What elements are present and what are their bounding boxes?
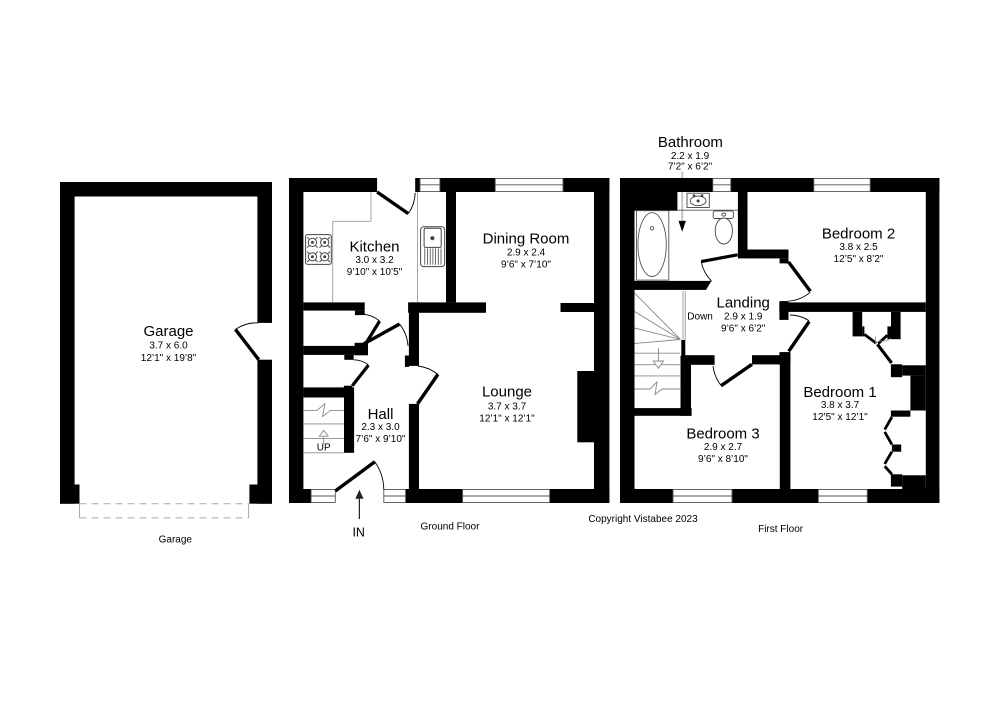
svg-text:3.0 x 3.2: 3.0 x 3.2 <box>355 255 394 266</box>
svg-text:Garage: Garage <box>159 535 193 546</box>
svg-text:Bathroom: Bathroom <box>658 134 723 151</box>
svg-text:First Floor: First Floor <box>758 524 804 535</box>
svg-text:Dining Room: Dining Room <box>483 231 570 248</box>
svg-text:12’5" x 12’1": 12’5" x 12’1" <box>812 412 868 423</box>
svg-text:9’6" x 7’10": 9’6" x 7’10" <box>501 259 551 270</box>
svg-text:Bedroom 1: Bedroom 1 <box>803 384 876 401</box>
svg-text:9’6" x 6’2": 9’6" x 6’2" <box>721 324 766 335</box>
svg-text:7’6" x 9’10": 7’6" x 9’10" <box>356 434 406 445</box>
svg-text:3.7 x 6.0: 3.7 x 6.0 <box>149 341 188 352</box>
svg-text:2.9 x 1.9: 2.9 x 1.9 <box>724 312 763 323</box>
svg-text:Lounge: Lounge <box>482 384 532 401</box>
svg-text:Bedroom 3: Bedroom 3 <box>686 426 759 443</box>
svg-text:12’1" x 12’1": 12’1" x 12’1" <box>479 413 535 424</box>
svg-text:12’1" x 19’8": 12’1" x 19’8" <box>141 353 197 364</box>
svg-text:2.2 x 1.9: 2.2 x 1.9 <box>671 151 710 162</box>
svg-text:2.9 x 2.7: 2.9 x 2.7 <box>704 442 743 453</box>
svg-text:Copyright Vistabee 2023: Copyright Vistabee 2023 <box>588 514 698 525</box>
svg-text:Landing: Landing <box>717 295 770 312</box>
svg-text:Bedroom 2: Bedroom 2 <box>822 225 895 242</box>
svg-text:7’2" x 6’2": 7’2" x 6’2" <box>668 162 713 173</box>
svg-text:Hall: Hall <box>368 406 394 423</box>
svg-text:2.9 x 2.4: 2.9 x 2.4 <box>507 247 546 258</box>
svg-text:IN: IN <box>352 526 365 540</box>
svg-text:Ground Floor: Ground Floor <box>421 522 481 533</box>
svg-text:UP: UP <box>317 442 331 453</box>
svg-text:Garage: Garage <box>143 323 193 340</box>
svg-text:3.8 x 3.7: 3.8 x 3.7 <box>821 400 860 411</box>
svg-text:Kitchen: Kitchen <box>349 239 399 256</box>
svg-text:12’5" x 8’2": 12’5" x 8’2" <box>834 254 884 265</box>
svg-text:3.8 x 2.5: 3.8 x 2.5 <box>839 242 878 253</box>
svg-text:Down: Down <box>687 312 713 323</box>
svg-text:9’6" x 8’10": 9’6" x 8’10" <box>698 454 748 465</box>
svg-text:2.3 x 3.0: 2.3 x 3.0 <box>361 422 400 433</box>
svg-text:9’10" x 10’5": 9’10" x 10’5" <box>347 267 403 278</box>
svg-text:3.7 x 3.7: 3.7 x 3.7 <box>488 401 527 412</box>
